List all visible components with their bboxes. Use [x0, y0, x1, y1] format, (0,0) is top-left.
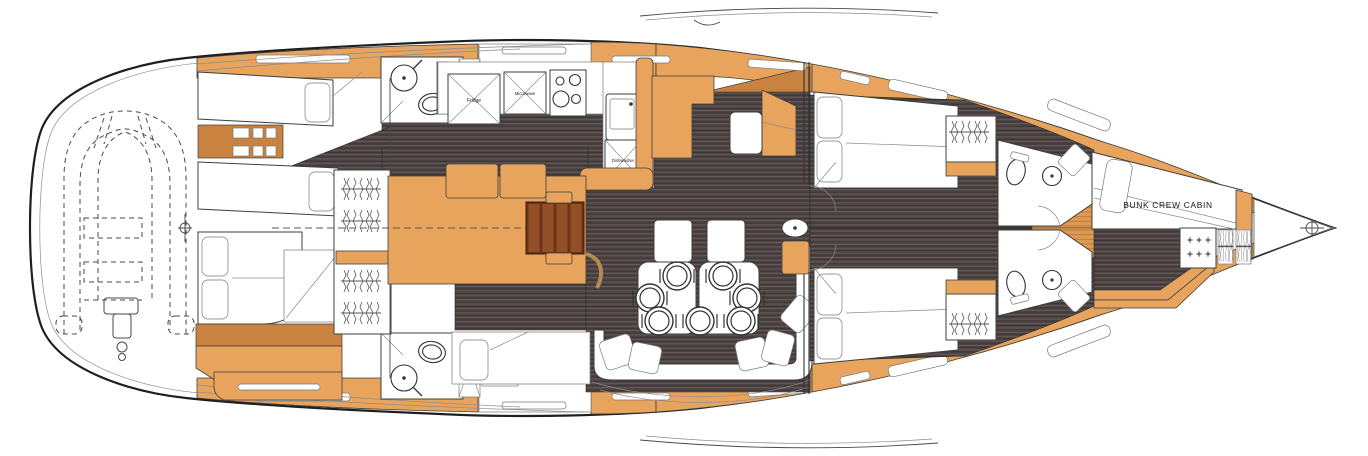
microwave-label: Microwave	[515, 91, 536, 96]
fridge-label: Fridge	[467, 98, 481, 104]
stove	[550, 70, 586, 116]
crew-cabin: BUNK CREW CABIN	[1092, 152, 1332, 308]
crew-mattress	[1180, 228, 1216, 268]
pillow	[309, 172, 334, 211]
sink	[606, 94, 640, 140]
aft-cabin-starboard	[196, 232, 342, 400]
wardrobe-midships	[334, 170, 391, 334]
deck-hatch-slit	[502, 47, 566, 54]
stool	[707, 220, 745, 262]
sofa-pillow	[627, 341, 662, 375]
forward-cabin-starboard	[810, 228, 1096, 364]
yacht-floor-plan-page: Fridge Microwave Dishwasher	[0, 0, 1368, 456]
stool	[654, 220, 692, 262]
aft-berth-nook	[452, 332, 590, 384]
yacht-floor-plan: Fridge Microwave Dishwasher	[0, 0, 1368, 456]
pillow	[817, 141, 842, 182]
shelf-unit	[196, 324, 342, 346]
pillow	[202, 237, 228, 276]
pillow	[305, 83, 330, 122]
pillow	[202, 280, 228, 319]
crew-cabin-label: BUNK CREW CABIN	[1123, 200, 1213, 210]
pillow	[817, 97, 842, 138]
companionway-stairs	[526, 202, 584, 254]
nav-seat	[730, 112, 762, 154]
dishwasher-label: Dishwasher	[612, 158, 635, 163]
forward-cabin-port	[810, 92, 1096, 228]
mast-locker	[782, 241, 809, 274]
bulwark-gate-notch-top	[694, 20, 720, 25]
